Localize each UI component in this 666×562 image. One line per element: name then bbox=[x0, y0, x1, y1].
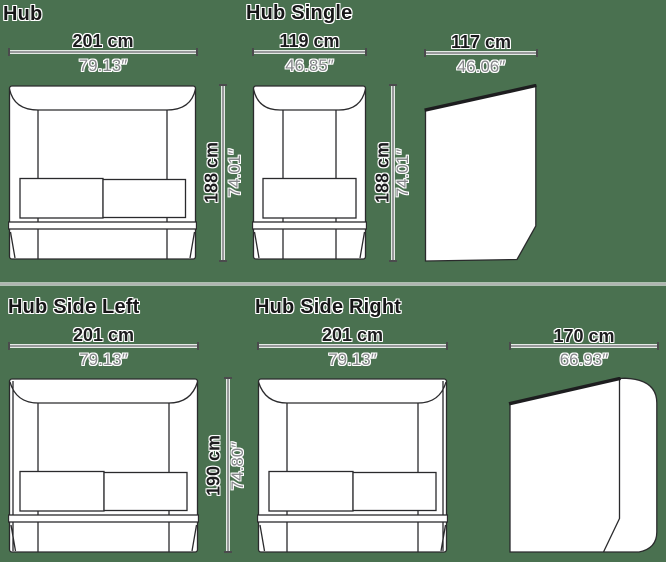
hub-single-width-dimension-line bbox=[252, 51, 367, 53]
hub-side-profile-width-dimension-line bbox=[509, 345, 659, 347]
hub-single-height-inches: 74.01″ bbox=[393, 123, 413, 223]
hub-single-width-inches: 46.85″ bbox=[252, 56, 367, 76]
hub-width-cm: 201 cm bbox=[8, 31, 198, 52]
hub-single-title: Hub Single bbox=[246, 2, 352, 25]
hub-side-left-height-cm: 190 cm bbox=[204, 416, 225, 516]
hub-width-inches: 79.13″ bbox=[8, 56, 198, 76]
hub-side-right-width-dimension-line bbox=[257, 345, 448, 347]
hub-side-right-width-inches: 79.13″ bbox=[257, 350, 448, 370]
hub-profile-top-width-cm: 117 cm bbox=[424, 32, 538, 53]
hub-single-width-cm: 119 cm bbox=[252, 31, 367, 52]
hub-side-profile-width-cm: 170 cm bbox=[509, 326, 659, 347]
hub-profile-top-width-dimension-line bbox=[424, 52, 538, 54]
hub-width-dimension-line bbox=[8, 51, 198, 53]
hub-title: Hub bbox=[3, 3, 42, 26]
hub-front-drawing bbox=[8, 84, 197, 262]
hub-side-left-title: Hub Side Left bbox=[8, 296, 140, 319]
hub-side-left-width-dimension-line bbox=[8, 345, 199, 347]
hub-side-profile-width-inches: 66.93″ bbox=[509, 350, 659, 370]
dimension-sheet: Hub 201 cm 79.13″ 188 cm 74.01″ Hub Sing… bbox=[0, 0, 666, 562]
hub-profile-top-width-inches: 46.06″ bbox=[424, 57, 538, 77]
hub-single-height-cm: 188 cm bbox=[373, 123, 394, 223]
hub-side-left-height-inches: 74.80″ bbox=[228, 416, 248, 516]
hub-side-profile-bottom-drawing bbox=[508, 377, 659, 555]
hub-side-right-title: Hub Side Right bbox=[255, 296, 401, 319]
hub-side-left-width-cm: 201 cm bbox=[8, 325, 199, 346]
hub-side-right-front-drawing bbox=[257, 377, 448, 555]
hub-height-cm: 188 cm bbox=[202, 123, 223, 223]
hub-side-right-width-cm: 201 cm bbox=[257, 325, 448, 346]
hub-single-front-drawing bbox=[252, 84, 367, 262]
section-divider bbox=[0, 283, 666, 285]
hub-side-profile-top-drawing bbox=[424, 84, 537, 263]
hub-side-left-front-drawing bbox=[8, 377, 199, 555]
hub-height-inches: 74.01″ bbox=[225, 123, 245, 223]
hub-side-left-width-inches: 79.13″ bbox=[8, 350, 199, 370]
